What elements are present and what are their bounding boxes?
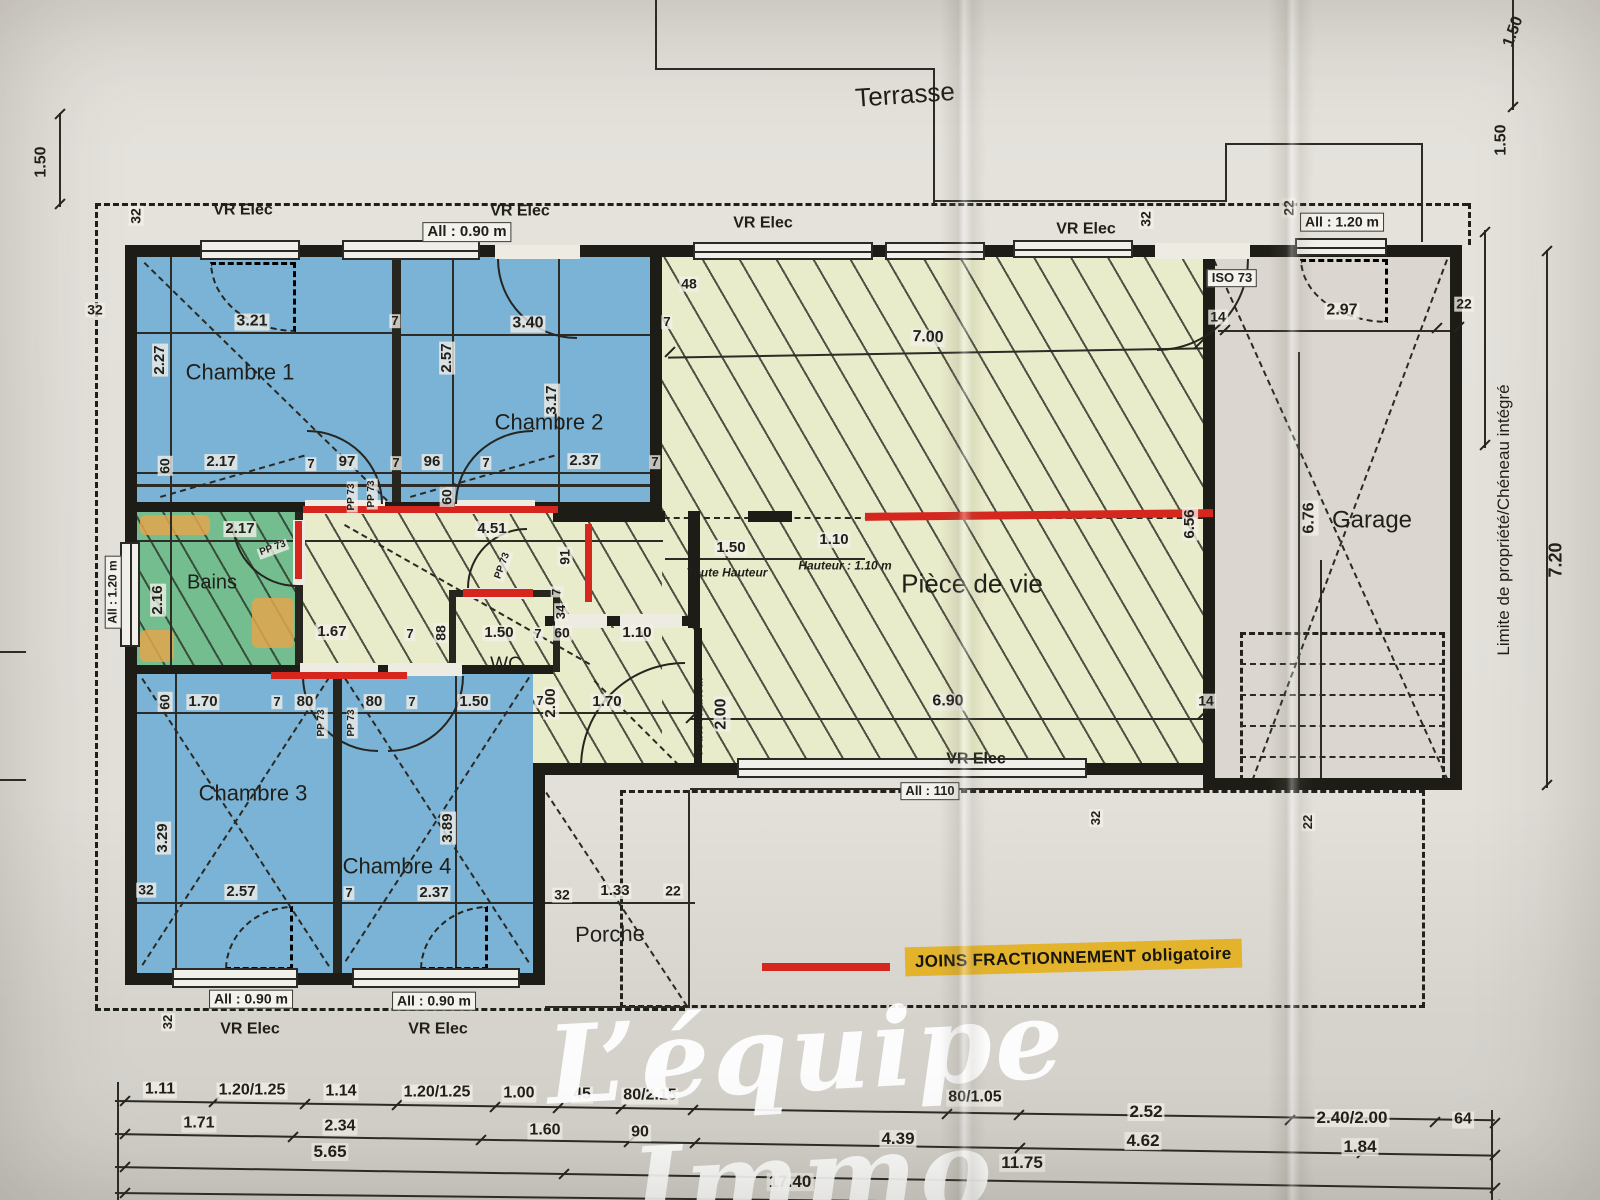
- dim-line: [452, 257, 454, 502]
- dim-label: 2.34: [322, 1119, 357, 1136]
- dim-label: 32: [129, 206, 144, 226]
- dim-label: 97: [337, 454, 358, 470]
- dim-label: 7: [305, 457, 316, 471]
- dim-line: [1298, 352, 1300, 778]
- legend: JOINS FRACTIONNEMENT obligatoire: [905, 944, 1242, 973]
- porch-edge: [688, 790, 690, 1008]
- dim-label: 34: [554, 603, 568, 621]
- dim-label: 32: [552, 888, 572, 903]
- window: [120, 542, 140, 647]
- wall-interior: [650, 257, 662, 512]
- dim-label: 7: [551, 587, 564, 598]
- dim-label: 1.67: [315, 624, 348, 640]
- dim-label: 5.65: [311, 1143, 348, 1161]
- dim-label: 7: [661, 315, 672, 329]
- dim-label: 7: [480, 456, 491, 470]
- dim-label: 6.76: [1302, 500, 1319, 535]
- wall-interior: [553, 511, 665, 522]
- dim-label: 4.62: [1124, 1132, 1161, 1150]
- dim-line: [1218, 330, 1458, 332]
- dim-label: 48: [679, 277, 699, 292]
- dim-label: 1.50: [1494, 122, 1511, 157]
- dim-label: 2.40/2.00: [1315, 1109, 1390, 1127]
- dim-label: 45: [571, 1087, 593, 1104]
- dim-label: VR Elec: [731, 216, 795, 233]
- dim-label: 7: [389, 314, 400, 328]
- dim-line: [400, 334, 662, 336]
- dim-label: 80/2.15: [621, 1088, 678, 1105]
- dim-label: 2.37: [567, 453, 600, 469]
- joint-red-line: [463, 589, 533, 597]
- dim-label: 91: [558, 547, 573, 567]
- dim-label: Chambre 3: [197, 781, 310, 804]
- joint-red-line: [295, 521, 302, 579]
- dim-label: 7: [390, 456, 401, 470]
- dim-label: PP 73: [367, 478, 378, 509]
- dim-label: 1.10: [817, 532, 850, 548]
- dim-label: 7: [406, 695, 417, 709]
- dim-label: 1.60: [527, 1123, 562, 1140]
- dim-label: ISO 73: [1207, 269, 1257, 287]
- dim-line: [137, 902, 342, 904]
- dim-label: Toute Hauteur: [685, 567, 770, 580]
- dim-label: 32: [1089, 809, 1103, 827]
- dim-label: 64: [1452, 1112, 1474, 1129]
- dim-label: 22: [1301, 813, 1315, 831]
- dim-label: VR Elec: [944, 752, 1008, 769]
- dim-label: All : 0.90 m: [392, 992, 476, 1011]
- door-opening: [495, 245, 580, 259]
- dim-label: PP 73: [347, 707, 358, 738]
- dim-label: All : 0.90 m: [209, 990, 293, 1009]
- dim-label: 1.20/1.25: [402, 1085, 473, 1102]
- dim-label: Chambre 4: [341, 854, 454, 877]
- dim-label: 1.50: [1500, 13, 1528, 52]
- garage-door-opening: [1155, 243, 1250, 259]
- dim-label: 3.21: [234, 314, 269, 331]
- dim-label: 88: [434, 623, 449, 643]
- dim-label: 2.52: [1127, 1103, 1164, 1121]
- dim-label: 1.50: [482, 625, 515, 641]
- wall: [533, 763, 545, 985]
- dim-label: 22: [1282, 198, 1297, 218]
- dim-label: 1.50: [457, 694, 490, 710]
- dim-label: 60: [552, 626, 572, 641]
- garage-apron-line: [1240, 663, 1445, 665]
- dim-label: 4.39: [879, 1130, 916, 1148]
- dim-label: All : 1.20 m: [1300, 213, 1384, 232]
- dim-label: Garage: [1330, 507, 1414, 532]
- dim-label: Terrasse: [852, 78, 957, 112]
- dim-line: [137, 332, 400, 334]
- dim-label: 22: [1454, 297, 1474, 312]
- dim-line: [0, 779, 26, 781]
- dim-chain-line: [117, 1082, 119, 1200]
- dim-label: 96: [422, 454, 443, 470]
- dim-label: 1.70: [590, 694, 623, 710]
- dim-label: PP 73: [347, 481, 358, 512]
- dim-label: Limite de propriété/Chéneau intégré: [1495, 382, 1513, 657]
- dim-label: 7: [534, 694, 545, 708]
- dim-label: 7: [404, 627, 415, 641]
- bath-patch: [140, 630, 174, 662]
- window: [342, 240, 480, 260]
- dim-label: Chambre 1: [184, 360, 297, 383]
- dim-line: [0, 651, 26, 653]
- dim-label: 1.50: [34, 144, 51, 179]
- dim-label: 32: [85, 303, 105, 318]
- dim-label: 32: [161, 1013, 175, 1031]
- dim-label: 2.17: [223, 521, 256, 537]
- dim-label: 1.00: [501, 1086, 536, 1103]
- dim-label: 17.40: [767, 1173, 814, 1191]
- window: [172, 968, 298, 988]
- floorplan-canvas: JOINS FRACTIONNEMENT obligatoire L’équip…: [0, 0, 1600, 1200]
- dim-chain-line: [115, 1192, 1495, 1200]
- dim-line: [303, 540, 663, 542]
- legend-red-line: [762, 963, 890, 971]
- dim-label: 32: [136, 883, 156, 898]
- dim-label: All : 1.20 m: [105, 555, 122, 628]
- dim-label: Toute Hauteur: [693, 674, 706, 759]
- dim-label: 1.71: [181, 1116, 216, 1133]
- dim-label: PP 73: [317, 707, 328, 738]
- dim-label: 60: [440, 487, 455, 507]
- boundary-dashed: [95, 203, 1468, 206]
- dim-label: 32: [1139, 209, 1154, 229]
- dim-label: VR Elec: [211, 203, 275, 220]
- dim-line: [170, 512, 172, 665]
- dim-label: 11.75: [999, 1154, 1045, 1172]
- dim-line: [59, 113, 61, 207]
- dim-label: Chambre 2: [493, 410, 606, 433]
- dim-label: 4.51: [475, 521, 508, 537]
- dim-label: 2.37: [417, 885, 450, 901]
- joint-red-line: [271, 672, 407, 679]
- terrace-edge: [655, 0, 657, 70]
- window: [1013, 240, 1133, 258]
- dim-line: [690, 718, 1206, 720]
- garage-apron-line: [1240, 756, 1445, 758]
- dim-label: All : 110: [900, 782, 959, 800]
- dim-label: 2.17: [204, 454, 237, 470]
- joint-red-line: [585, 524, 592, 602]
- dim-label: 80: [295, 694, 316, 710]
- dim-label: 7: [271, 695, 282, 709]
- dim-line: [342, 902, 533, 904]
- dim-label: VR Elec: [488, 204, 552, 221]
- dim-label: 3.29: [155, 821, 171, 854]
- dim-label: 1.84: [1341, 1138, 1378, 1156]
- dim-label: 2.16: [150, 583, 166, 616]
- dim-label: 2.57: [224, 884, 257, 900]
- dim-label: 2.00: [714, 696, 731, 731]
- dim-label: Hauteur : 1.10 m: [796, 560, 893, 573]
- terrace-edge: [933, 200, 1225, 202]
- window: [352, 968, 520, 988]
- dim-label: 3.40: [510, 316, 545, 333]
- dim-label: 14: [1196, 694, 1216, 709]
- dim-label: 7: [343, 886, 354, 900]
- dim-label: 7.00: [910, 329, 946, 347]
- dim-label: 2.97: [1324, 303, 1359, 320]
- boundary-dashed: [1468, 203, 1471, 245]
- window: [737, 758, 1087, 778]
- boundary-dashed: [95, 1008, 685, 1011]
- dim-label: 1.14: [323, 1084, 358, 1101]
- dim-label: Porche: [573, 922, 647, 946]
- bath-patch: [140, 515, 210, 535]
- dim-label: 60: [158, 456, 173, 476]
- dim-label: 90: [629, 1125, 651, 1142]
- dim-line: [175, 674, 177, 973]
- terrace-edge: [1225, 143, 1227, 202]
- dim-label: 7: [532, 627, 543, 641]
- wall: [1203, 778, 1462, 790]
- terrace-edge: [1421, 143, 1423, 242]
- dim-label: 22: [663, 884, 683, 899]
- window: [885, 242, 985, 260]
- dim-label: WC: [488, 655, 524, 675]
- dim-line: [1546, 250, 1548, 788]
- boundary-dashed: [95, 203, 98, 1010]
- window: [200, 240, 300, 260]
- wall-interior: [449, 597, 456, 665]
- dim-label: VR Elec: [1054, 222, 1118, 239]
- dim-label: All : 0.90 m: [422, 222, 511, 242]
- dim-label: 1.10: [620, 625, 653, 641]
- window: [693, 242, 873, 260]
- joint-red-line: [303, 506, 558, 513]
- dim-label: 2.27: [152, 343, 168, 376]
- terrace-edge: [1225, 143, 1423, 145]
- dim-label: 7: [649, 455, 660, 469]
- dim-label: 6.56: [1182, 507, 1198, 540]
- dim-label: 3.89: [440, 811, 456, 844]
- dim-label: 6.90: [930, 694, 965, 711]
- dim-label: 1.70: [186, 694, 219, 710]
- dim-label: 1.33: [598, 883, 631, 899]
- terrace-edge: [655, 68, 935, 70]
- wall-interior: [748, 511, 792, 522]
- dim-label: 1.11: [143, 1082, 177, 1099]
- porch-edge: [545, 1006, 690, 1008]
- dim-label: 1.20/1.25: [217, 1083, 288, 1100]
- garage-apron-line: [1240, 694, 1445, 696]
- dim-label: Bains: [185, 573, 239, 594]
- dim-label: VR Elec: [218, 1022, 282, 1039]
- window: [1295, 238, 1387, 256]
- dim-label: 80/1.05: [946, 1090, 1003, 1107]
- bath-patch: [252, 598, 294, 648]
- dim-label: 1.50: [714, 540, 747, 556]
- dim-line: [1484, 230, 1486, 448]
- dim-label: Pièce de vie: [899, 570, 1045, 597]
- garage-apron: [1240, 632, 1445, 790]
- dim-label: 14: [1208, 310, 1228, 325]
- dim-label: VR Elec: [406, 1022, 470, 1039]
- dim-label: 60: [158, 692, 173, 712]
- dim-label: 2.57: [439, 341, 455, 374]
- dim-label: 7.20: [1547, 540, 1566, 579]
- dim-label: 80: [364, 694, 385, 710]
